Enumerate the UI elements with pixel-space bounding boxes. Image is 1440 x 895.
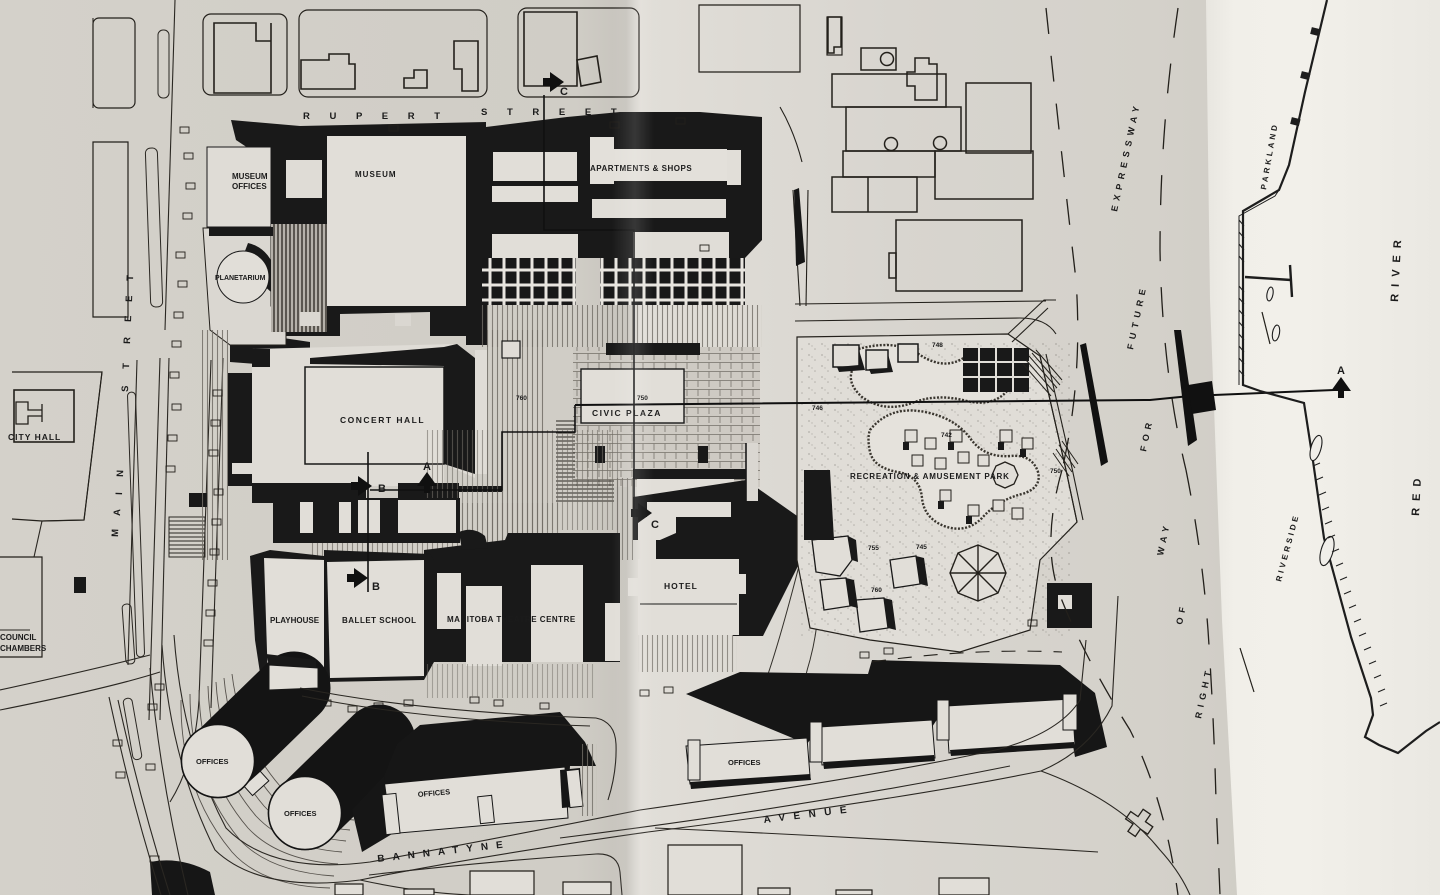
svg-text:COUNCIL: COUNCIL xyxy=(0,633,37,642)
svg-text:750: 750 xyxy=(1050,468,1061,475)
svg-text:E: E xyxy=(123,315,134,322)
svg-text:S: S xyxy=(120,385,131,392)
svg-text:B: B xyxy=(378,483,386,495)
svg-text:742: 742 xyxy=(941,432,952,439)
svg-text:748: 748 xyxy=(932,342,943,349)
svg-text:RED: RED xyxy=(1410,471,1424,516)
svg-text:746: 746 xyxy=(812,405,823,412)
svg-text:745: 745 xyxy=(916,544,927,551)
svg-text:A: A xyxy=(1337,365,1345,377)
svg-text:PLANETARIUM: PLANETARIUM xyxy=(215,275,266,282)
svg-text:OFFICES: OFFICES xyxy=(284,809,317,818)
svg-text:R: R xyxy=(122,337,133,344)
svg-text:HOTEL: HOTEL xyxy=(664,581,698,591)
svg-text:760: 760 xyxy=(516,395,527,402)
svg-text:MUSEUM: MUSEUM xyxy=(355,170,397,179)
svg-text:PLAYHOUSE: PLAYHOUSE xyxy=(270,616,320,625)
svg-text:BALLET SCHOOL: BALLET SCHOOL xyxy=(342,616,417,625)
svg-text:T: T xyxy=(121,363,132,369)
svg-text:T: T xyxy=(125,275,136,281)
svg-text:MUSEUM: MUSEUM xyxy=(232,172,268,181)
svg-text:A: A xyxy=(112,509,123,516)
svg-text:N: N xyxy=(115,470,126,477)
svg-text:CITY HALL: CITY HALL xyxy=(8,432,61,442)
svg-text:MANITOBA THEATRE CENTRE: MANITOBA THEATRE CENTRE xyxy=(447,615,576,624)
svg-text:R U P E R T: R U P E R T xyxy=(303,111,449,122)
svg-text:M: M xyxy=(110,529,121,537)
svg-text:OFFICES: OFFICES xyxy=(196,757,229,766)
svg-text:E: E xyxy=(124,295,135,302)
svg-text:C: C xyxy=(560,86,568,98)
svg-text:I: I xyxy=(114,492,125,495)
svg-text:760: 760 xyxy=(871,587,882,594)
svg-text:CONCERT HALL: CONCERT HALL xyxy=(340,415,425,425)
svg-text:B: B xyxy=(372,581,380,593)
svg-text:CHAMBERS: CHAMBERS xyxy=(0,644,47,653)
svg-text:OFFICES: OFFICES xyxy=(728,758,761,767)
svg-text:755: 755 xyxy=(868,545,879,552)
svg-text:A: A xyxy=(423,461,431,473)
svg-text:OFFICES: OFFICES xyxy=(232,182,267,191)
svg-text:RECREATION & AMUSEMENT PARK: RECREATION & AMUSEMENT PARK xyxy=(850,472,1010,481)
